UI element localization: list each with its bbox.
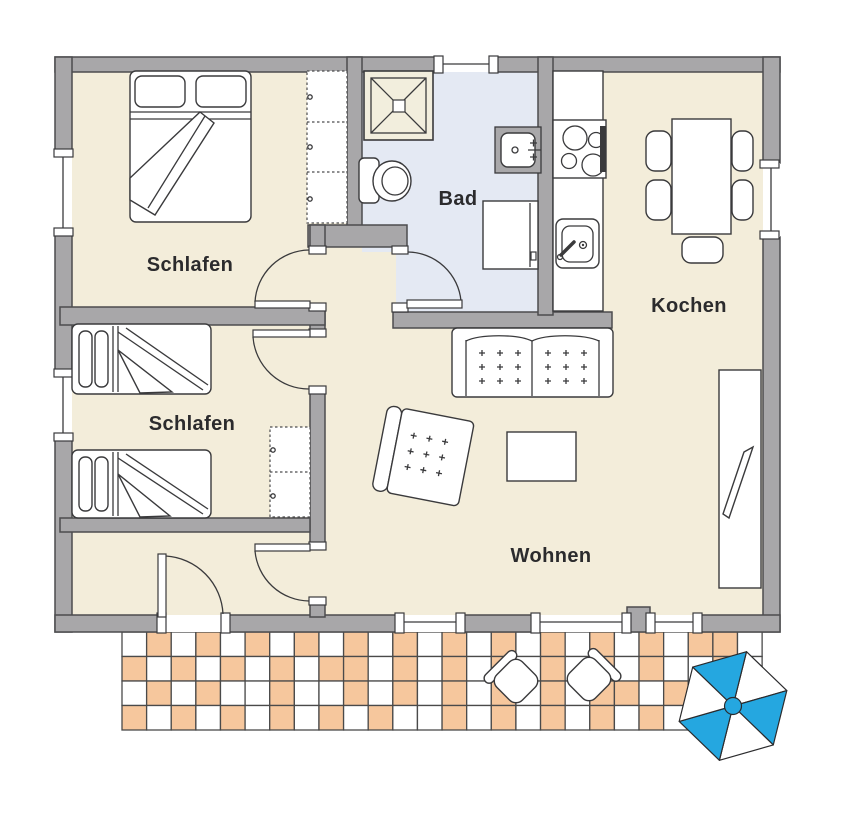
terrace-tile bbox=[196, 706, 221, 731]
terrace-tile bbox=[614, 706, 639, 731]
chair bbox=[732, 180, 753, 220]
washing-machine bbox=[483, 201, 538, 269]
terrace-tile bbox=[122, 657, 147, 682]
terrace-tile bbox=[245, 657, 270, 682]
sofa bbox=[452, 328, 613, 397]
terrace-tile bbox=[344, 681, 369, 706]
terrace-tile bbox=[688, 632, 713, 657]
terrace-tile bbox=[196, 657, 221, 682]
double-bed bbox=[130, 71, 251, 222]
shower bbox=[364, 71, 433, 140]
wall-right-2 bbox=[763, 237, 780, 632]
parasol bbox=[679, 652, 787, 761]
terrace-tile bbox=[344, 706, 369, 731]
terrace-tile bbox=[147, 632, 172, 657]
dining-table bbox=[672, 119, 731, 234]
wall-bottom-1 bbox=[55, 615, 162, 632]
terrace-tile bbox=[319, 632, 344, 657]
pillow bbox=[95, 457, 108, 511]
terrace-glass-door-right bbox=[646, 613, 702, 633]
terrace-tile bbox=[294, 632, 319, 657]
terrace-tile bbox=[491, 706, 516, 731]
terrace-tile bbox=[639, 632, 664, 657]
terrace-tile bbox=[639, 706, 664, 731]
terrace-tile bbox=[393, 706, 418, 731]
terrace-tile bbox=[171, 706, 196, 731]
terrace-tile bbox=[220, 657, 245, 682]
wall-bedroom1-bath bbox=[347, 57, 362, 230]
terrace-tile bbox=[664, 657, 689, 682]
wall-left-2 bbox=[55, 233, 72, 372]
terrace-tile bbox=[368, 632, 393, 657]
pillow bbox=[79, 457, 92, 511]
kitchen-sink bbox=[556, 219, 599, 268]
terrace-tile bbox=[516, 632, 541, 657]
terrace-tile bbox=[147, 657, 172, 682]
terrace-tile bbox=[541, 632, 566, 657]
kitchen-counter bbox=[553, 71, 603, 311]
terrace-tile bbox=[664, 632, 689, 657]
terrace-tile bbox=[467, 706, 492, 731]
terrace-tile bbox=[393, 657, 418, 682]
terrace-tile bbox=[565, 632, 590, 657]
pillow bbox=[135, 76, 185, 107]
terrace-glass-door-left bbox=[531, 613, 631, 633]
wardrobe-bedroom1 bbox=[307, 71, 347, 223]
shower-drain bbox=[393, 100, 405, 112]
wall-right-1 bbox=[763, 57, 780, 163]
terrace-tile bbox=[245, 681, 270, 706]
terrace-tile bbox=[344, 632, 369, 657]
terrace-tile bbox=[245, 632, 270, 657]
window-living-bottom bbox=[395, 613, 465, 633]
terrace-tile bbox=[417, 681, 442, 706]
chair bbox=[646, 180, 671, 220]
handle bbox=[531, 252, 536, 260]
wall-bottom-4 bbox=[698, 615, 780, 632]
terrace-tile bbox=[442, 681, 467, 706]
terrace-tile bbox=[417, 632, 442, 657]
stove bbox=[553, 120, 606, 178]
terrace-tiles bbox=[122, 632, 762, 730]
terrace-tile bbox=[639, 681, 664, 706]
terrace-tile bbox=[590, 706, 615, 731]
terrace-tile bbox=[270, 632, 295, 657]
terrace-tile bbox=[147, 706, 172, 731]
terrace-tile bbox=[614, 632, 639, 657]
terrace-tile bbox=[270, 657, 295, 682]
sideboard-tv bbox=[719, 370, 761, 588]
wall-left-3 bbox=[55, 438, 72, 632]
terrace-tile bbox=[442, 632, 467, 657]
terrace-tile bbox=[639, 657, 664, 682]
terrace-tile bbox=[171, 657, 196, 682]
terrace-tile bbox=[122, 632, 147, 657]
terrace-tile bbox=[541, 706, 566, 731]
terrace-tile bbox=[270, 706, 295, 731]
window-bath-top bbox=[434, 56, 498, 73]
terrace-tile bbox=[713, 632, 738, 657]
room-label-living: Wohnen bbox=[511, 545, 592, 567]
window-bedroom2-left bbox=[54, 369, 73, 441]
chair bbox=[732, 131, 753, 171]
terrace-tile bbox=[442, 706, 467, 731]
terrace-tile bbox=[368, 706, 393, 731]
oven-handle bbox=[600, 126, 606, 172]
wardrobe-bedroom2 bbox=[270, 427, 310, 517]
parasol-pole bbox=[725, 698, 742, 715]
room-label-bath: Bad bbox=[439, 188, 478, 210]
single-bed-1 bbox=[72, 324, 211, 394]
wall-bath-kitchen bbox=[538, 57, 553, 315]
terrace-tile bbox=[319, 706, 344, 731]
wall-central-3 bbox=[310, 390, 325, 545]
terrace-tile bbox=[368, 681, 393, 706]
single-bed-2 bbox=[72, 450, 211, 518]
terrace-tile bbox=[122, 706, 147, 731]
terrace-tile bbox=[171, 681, 196, 706]
terrace-tile bbox=[147, 681, 172, 706]
window-bedroom1-left bbox=[54, 149, 73, 236]
terrace-tile bbox=[541, 657, 566, 682]
floor-plan-drawing: Schlafen Schlafen Bad Kochen Wohnen bbox=[0, 0, 843, 817]
chair bbox=[682, 237, 723, 263]
terrace-tile bbox=[541, 681, 566, 706]
terrace-tile bbox=[294, 681, 319, 706]
room-label-kitchen: Kochen bbox=[651, 295, 727, 317]
armchair-seat bbox=[386, 408, 474, 506]
terrace-tile bbox=[516, 706, 541, 731]
terrace-tile bbox=[196, 681, 221, 706]
washbasin bbox=[495, 127, 541, 173]
terrace-tile bbox=[467, 681, 492, 706]
terrace-tile bbox=[614, 681, 639, 706]
wall-bottom-3 bbox=[460, 615, 535, 632]
terrace-tile bbox=[122, 681, 147, 706]
terrace-tile bbox=[245, 706, 270, 731]
room-label-bedroom2: Schlafen bbox=[149, 413, 236, 435]
wall-between-bedrooms bbox=[60, 307, 325, 325]
terrace-tile bbox=[393, 681, 418, 706]
terrace-tile bbox=[319, 681, 344, 706]
terrace-tile bbox=[417, 657, 442, 682]
window-kitchen-right bbox=[760, 160, 780, 239]
coffee-table bbox=[507, 432, 576, 481]
terrace-tile bbox=[220, 632, 245, 657]
terrace-tile bbox=[220, 706, 245, 731]
terrace-tile bbox=[467, 632, 492, 657]
wall-left-1 bbox=[55, 57, 72, 152]
terrace-tile bbox=[442, 657, 467, 682]
pillow bbox=[196, 76, 246, 107]
wall-top-left-segment bbox=[55, 57, 437, 72]
wall-below-bath bbox=[393, 312, 612, 328]
chair bbox=[646, 131, 671, 171]
terrace-tile bbox=[417, 706, 442, 731]
terrace-tile bbox=[319, 657, 344, 682]
terrace-tile bbox=[368, 657, 393, 682]
terrace-tile bbox=[294, 706, 319, 731]
terrace-tile bbox=[565, 706, 590, 731]
toilet bbox=[359, 158, 411, 203]
terrace-tile bbox=[270, 681, 295, 706]
terrace-tile bbox=[294, 657, 319, 682]
floor-plan-page: Schlafen Schlafen Bad Kochen Wohnen bbox=[0, 0, 843, 817]
pillow bbox=[95, 331, 108, 387]
wall-bedroom2-corridor bbox=[60, 518, 310, 532]
terrace-tile bbox=[196, 632, 221, 657]
terrace-tile bbox=[393, 632, 418, 657]
pillow bbox=[79, 331, 92, 387]
terrace-tile bbox=[220, 681, 245, 706]
terrace-tile bbox=[344, 657, 369, 682]
terrace-tile bbox=[171, 632, 196, 657]
room-label-bedroom1: Schlafen bbox=[147, 254, 234, 276]
